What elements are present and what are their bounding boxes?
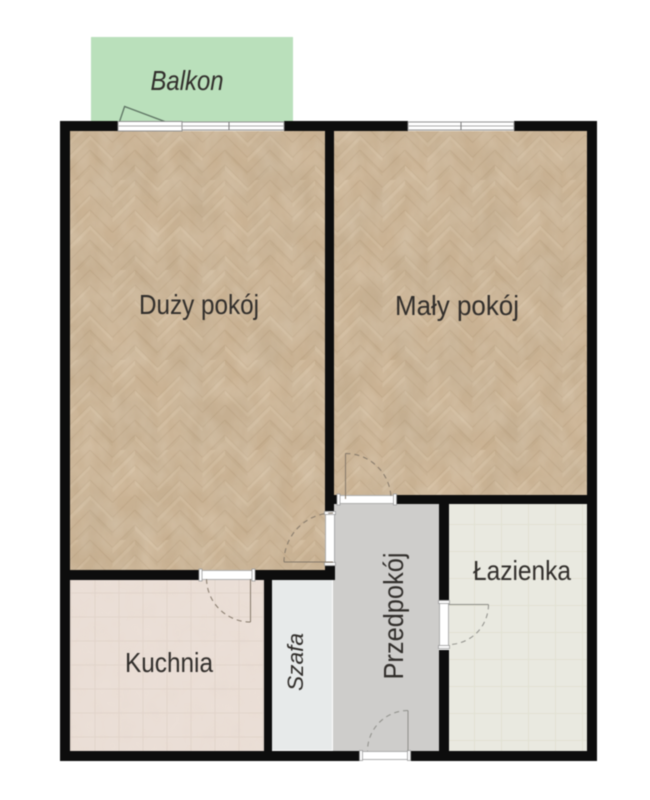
svg-text:Duży pokój: Duży pokój (139, 289, 259, 320)
svg-text:Łazienka: Łazienka (473, 555, 572, 586)
svg-text:Balkon: Balkon (151, 65, 224, 96)
svg-text:Przedpokój: Przedpokój (378, 553, 409, 680)
svg-text:Kuchnia: Kuchnia (125, 647, 214, 678)
svg-text:Mały pokój: Mały pokój (395, 290, 519, 321)
svg-text:Szafa: Szafa (283, 633, 308, 691)
